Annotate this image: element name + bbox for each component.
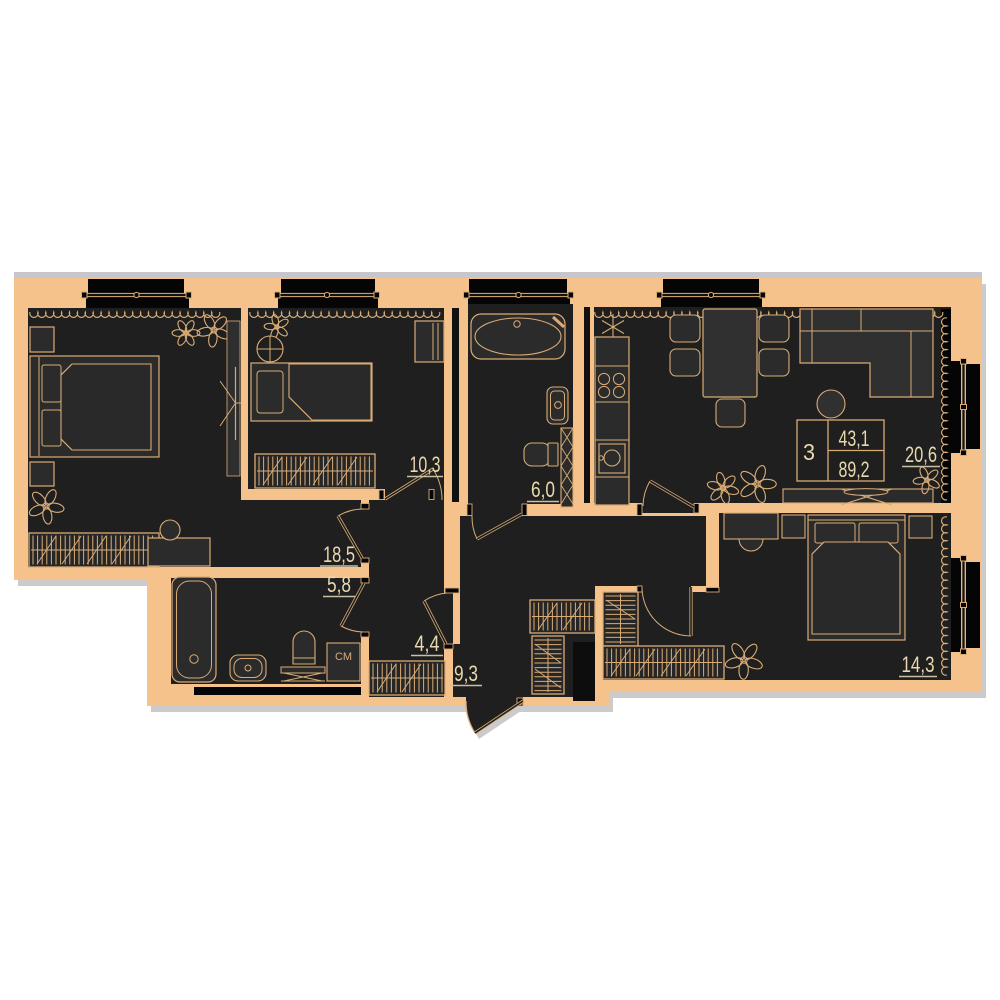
svg-text:4,4: 4,4 — [415, 631, 440, 656]
svg-text:18,5: 18,5 — [323, 542, 355, 567]
svg-text:20,6: 20,6 — [905, 442, 937, 467]
svg-text:89,2: 89,2 — [839, 457, 870, 482]
svg-text:3: 3 — [803, 439, 815, 465]
svg-text:6,0: 6,0 — [531, 477, 555, 502]
svg-text:СМ: СМ — [335, 651, 352, 663]
svg-text:10,3: 10,3 — [410, 452, 441, 477]
svg-text:5,8: 5,8 — [327, 572, 351, 597]
svg-text:14,3: 14,3 — [902, 652, 935, 677]
svg-text:9,3: 9,3 — [454, 661, 478, 686]
svg-text:43,1: 43,1 — [839, 426, 870, 451]
